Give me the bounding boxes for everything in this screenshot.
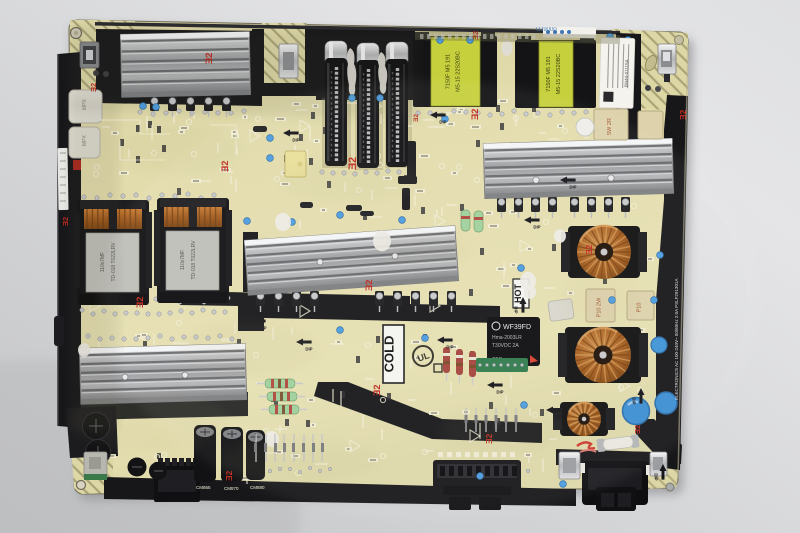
svg-text:7150F M5 191: 7150F M5 191 — [546, 56, 552, 91]
svg-text:CM870: CM870 — [224, 486, 239, 491]
svg-text:UJ9000: UJ9000 — [536, 27, 557, 33]
svg-text:M5-15 22S20BC: M5-15 22S20BC — [556, 54, 562, 95]
svg-text:DIP: DIP — [653, 473, 658, 480]
svg-text:CM865: CM865 — [196, 485, 211, 490]
svg-text:Ǝ2: Ǝ2 — [61, 217, 70, 226]
svg-text:BN44-01115A: BN44-01115A — [624, 59, 630, 87]
